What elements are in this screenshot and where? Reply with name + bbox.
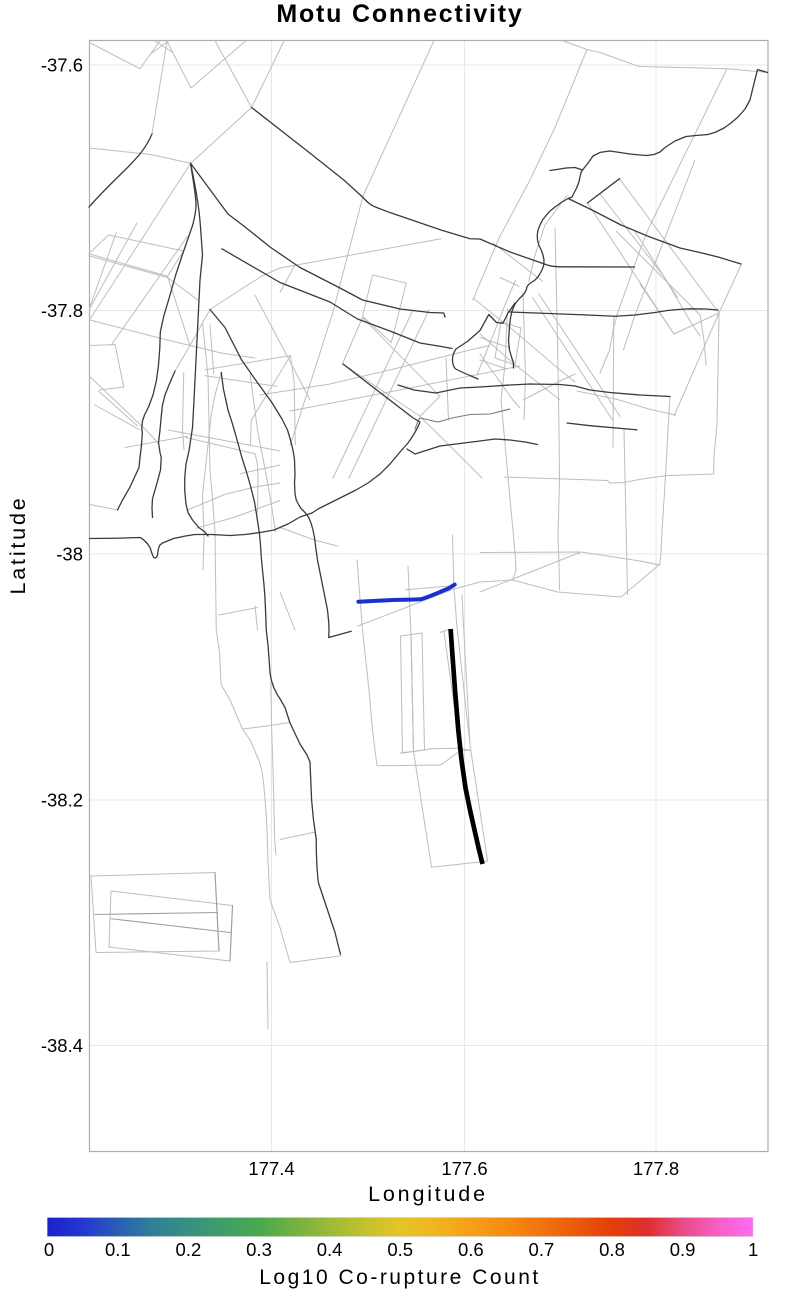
svg-text:177.4: 177.4 [248, 1158, 294, 1179]
svg-text:0.5: 0.5 [387, 1239, 413, 1260]
svg-text:0.6: 0.6 [458, 1239, 484, 1260]
svg-text:Log10 Co-rupture Count: Log10 Co-rupture Count [259, 1266, 540, 1289]
svg-text:Longitude: Longitude [368, 1182, 488, 1206]
svg-text:Latitude: Latitude [6, 496, 30, 595]
svg-text:177.6: 177.6 [441, 1158, 487, 1179]
svg-text:0.2: 0.2 [176, 1239, 202, 1260]
svg-text:177.8: 177.8 [633, 1158, 679, 1179]
svg-text:-38.2: -38.2 [41, 790, 83, 811]
svg-text:-38.4: -38.4 [41, 1035, 83, 1056]
svg-text:0.7: 0.7 [529, 1239, 555, 1260]
svg-text:0: 0 [44, 1239, 54, 1260]
svg-text:-37.6: -37.6 [41, 55, 83, 76]
svg-text:0.1: 0.1 [105, 1239, 131, 1260]
svg-text:1: 1 [748, 1239, 758, 1260]
svg-text:0.3: 0.3 [246, 1239, 272, 1260]
svg-text:0.8: 0.8 [599, 1239, 625, 1260]
svg-text:-37.8: -37.8 [41, 300, 83, 321]
svg-text:-38: -38 [56, 544, 83, 565]
svg-text:Motu Connectivity: Motu Connectivity [276, 0, 523, 28]
svg-text:0.4: 0.4 [317, 1239, 343, 1260]
svg-text:0.9: 0.9 [670, 1239, 696, 1260]
